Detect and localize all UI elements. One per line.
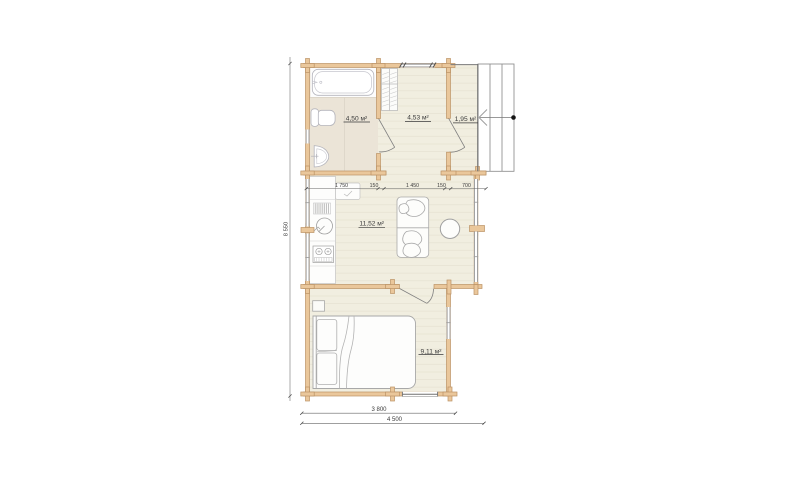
svg-text:11,52 м²: 11,52 м² bbox=[359, 221, 384, 228]
svg-text:1 750: 1 750 bbox=[335, 183, 348, 189]
svg-text:4 500: 4 500 bbox=[387, 417, 403, 423]
svg-text:3 800: 3 800 bbox=[371, 407, 387, 413]
svg-text:1,95 м²: 1,95 м² bbox=[455, 116, 477, 123]
svg-text:700: 700 bbox=[462, 183, 471, 189]
svg-text:1 450: 1 450 bbox=[406, 183, 419, 189]
svg-text:150: 150 bbox=[437, 183, 446, 189]
svg-text:4,53 м²: 4,53 м² bbox=[407, 115, 429, 122]
svg-text:150: 150 bbox=[370, 183, 379, 189]
svg-text:8 550: 8 550 bbox=[283, 222, 289, 237]
svg-text:4,50 м²: 4,50 м² bbox=[346, 115, 368, 122]
